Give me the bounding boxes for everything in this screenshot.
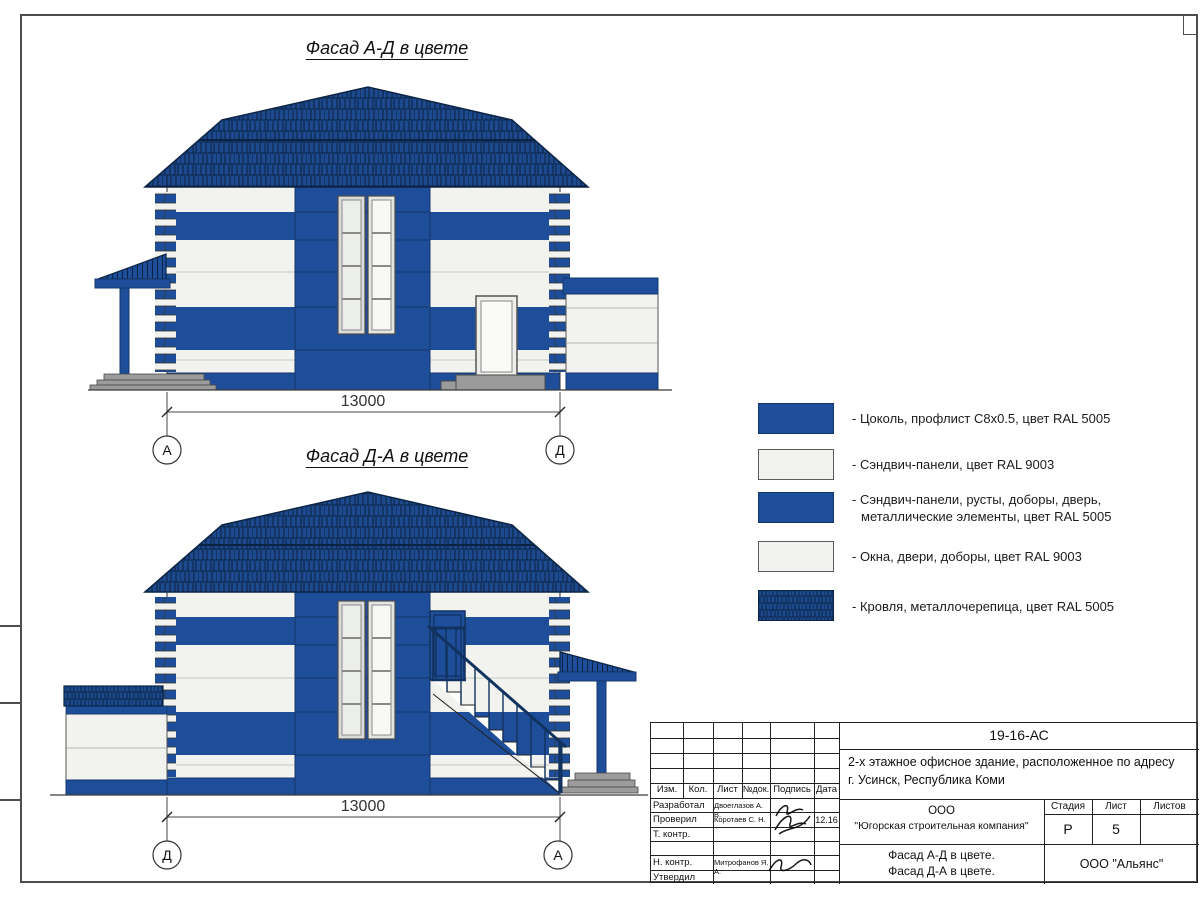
legend-swatch-roof [758,590,834,621]
door-steps-ad [441,375,545,390]
tb-org: ООО "Альянс" [1044,857,1199,871]
legend-label-blue-elements-2: металлические элементы, цвет RAL 5005 [861,509,1111,524]
porch-steps-ad [90,374,216,390]
legend-label-base: - Цоколь, профлист С8х0.5, цвет RAL 5005 [852,411,1110,426]
corner-stamp-box [1183,14,1197,35]
svg-text:А: А [553,847,563,863]
svg-text:А: А [162,442,172,458]
tb-doc-number: 19-16-АС [839,727,1199,743]
entrance-door-ad [476,296,517,377]
signature-nkontr [767,855,813,875]
axis-marker-d-bottom: Д [153,841,181,869]
frame-top [20,14,1198,16]
svg-text:Д: Д [162,847,172,863]
tb-date-proveril: 12.16 [814,815,839,825]
svg-text:13000: 13000 [341,393,386,410]
tb-company-line2: "Югорская строительная компания" [839,820,1044,832]
tb-role-razrabotal: Разработал [653,800,713,811]
tb-role-tkontr: Т. контр. [653,829,713,840]
svg-text:Д: Д [555,442,565,458]
tb-role-utverdil: Утвердил [653,872,713,883]
roof-da [145,492,588,592]
svg-text:13000: 13000 [341,798,386,815]
tb-sheet-title-line2: Фасад Д-А в цвете. [839,864,1044,878]
legend-swatch-base [758,403,834,434]
signature-top [772,800,814,840]
tb-sheet-value: 5 [1092,821,1140,837]
binding-mark-2 [0,702,20,704]
garage-ad [563,278,658,390]
porch-steps-da [561,773,638,793]
legend-label-roof: - Кровля, металлочерепица, цвет RAL 5005 [852,599,1114,614]
tb-header-data: Дата [814,784,839,795]
facade-da-drawing: 13000 Д А [40,480,700,880]
legend-label-panels: - Сэндвич-панели, цвет RAL 9003 [852,457,1054,472]
tb-header-list: Лист [713,784,742,795]
roof-ad [145,87,588,187]
tb-name-proveril: Коротаев С. Н. [714,815,770,824]
legend-label-windows: - Окна, двери, доборы, цвет RAL 9003 [852,549,1082,564]
tb-role-proveril: Проверил [653,814,713,825]
tb-description-line1: 2-х этажное офисное здание, расположенно… [848,755,1198,769]
tb-header-izm: Изм. [651,784,683,795]
tb-role-nkontr: Н. контр. [653,857,713,868]
binding-mark-3 [0,799,20,801]
legend-swatch-panels [758,449,834,480]
frame-left [20,14,22,883]
legend-swatch-blue-elements [758,492,834,523]
axis-marker-a-bottom: А [544,841,572,869]
tb-stage-value: Р [1044,821,1092,837]
tb-header-kol: Кол. [683,784,713,795]
legend-label-blue-elements-1: - Сэндвич-панели, русты, доборы, дверь, [852,492,1101,507]
axis-marker-a-top: А [153,436,181,464]
dimension-da: 13000 [162,797,565,841]
facade-ad-drawing: 13000 А Д [40,60,700,470]
tb-name-nkontr: Митрофанов Я. А. [714,858,770,876]
tb-header-podpis: Подпись [770,784,814,795]
legend-swatch-windows [758,541,834,572]
tb-description-line2: г. Усинск, Республика Коми [848,773,1198,787]
binding-mark-1 [0,625,20,627]
drawing-sheet: Фасад А-Д в цвете Фасад Д-А в цвете [0,0,1200,900]
tb-company-line1: ООО [839,805,1044,817]
tb-sheet-title-line1: Фасад А-Д в цвете. [839,848,1044,862]
title-block: Изм. Кол. Лист №док. Подпись Дата Разраб… [650,722,1198,883]
tb-stage-label: Стадия [1044,801,1092,812]
tb-sheet-label: Лист [1092,801,1140,812]
attached-block-da [64,686,167,795]
facade-ad-title: Фасад А-Д в цвете [277,38,497,59]
dimension-ad: 13000 [162,392,565,436]
tb-sheets-label: Листов [1140,801,1199,812]
axis-marker-d-top: Д [546,436,574,464]
tb-header-ndok: №док. [742,784,770,794]
